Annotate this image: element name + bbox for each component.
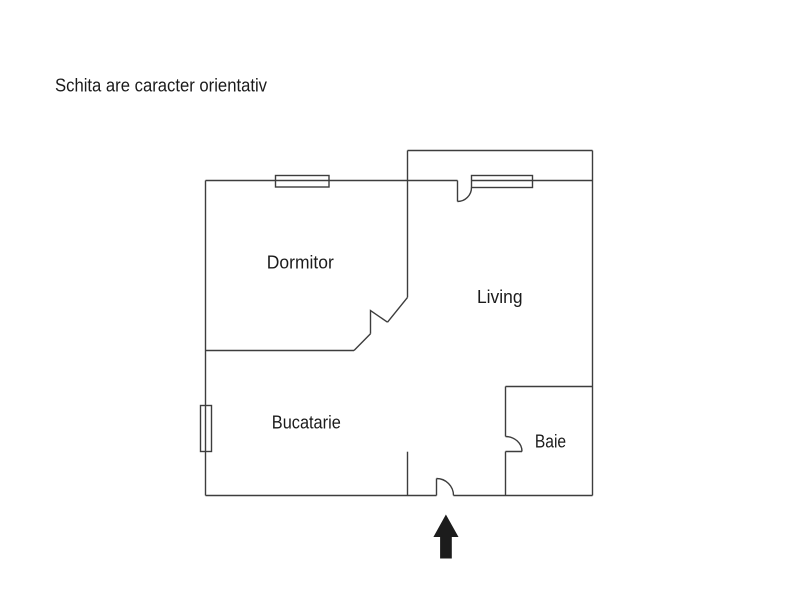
svg-text:Dormitor: Dormitor (267, 252, 334, 272)
svg-text:Schita are caracter orientativ: Schita are caracter orientativ (55, 74, 268, 95)
svg-text:Baie: Baie (535, 432, 566, 452)
svg-text:Living: Living (477, 287, 523, 307)
svg-text:Bucatarie: Bucatarie (272, 413, 341, 433)
